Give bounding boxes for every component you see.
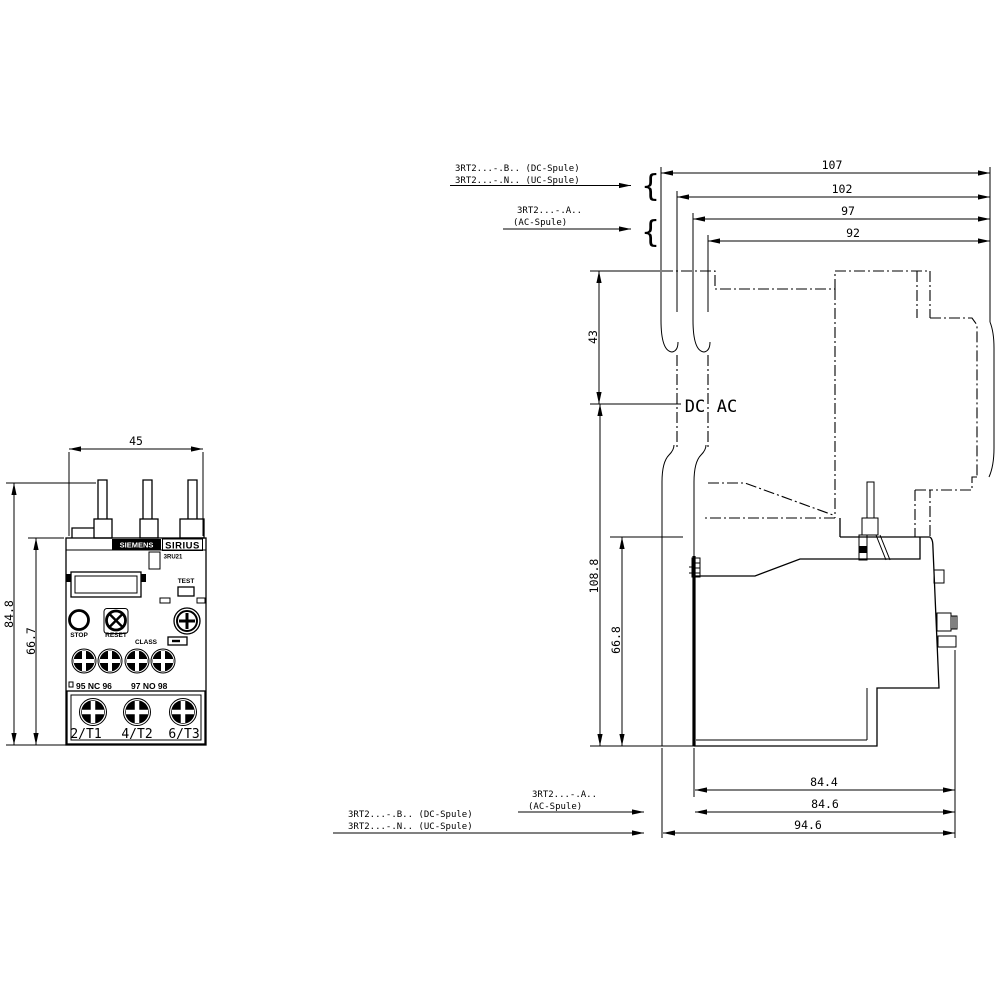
brace-top-dc: {: [641, 169, 660, 204]
plug-pin-assembly: [859, 482, 890, 560]
relay-right-features: [934, 570, 957, 647]
dimension-drawing-page: 45 84.8 66.7 SIEMENS SIRIUS 3RU21: [0, 0, 1000, 1000]
technical-drawing: 45 84.8 66.7 SIEMENS SIRIUS 3RU21: [0, 0, 1000, 1000]
aux-terminals-left-label: 95 NC 96: [76, 681, 112, 691]
stop-button[interactable]: [70, 611, 89, 630]
terminal-2T1-label: 2/T1: [70, 727, 101, 742]
current-dial[interactable]: [66, 572, 146, 597]
coil-ac-label: AC: [717, 397, 737, 417]
dim-92: 92: [846, 226, 860, 240]
main-terminal-screws[interactable]: [80, 699, 197, 726]
contactor-phantom-outline: [662, 271, 994, 537]
dim-45: 45: [129, 434, 143, 448]
indicator-window-right: [197, 598, 205, 603]
label-bottom-dc-2: 3RT2...-.N.. (UC-Spule): [348, 822, 473, 832]
terminal-6T3-label: 6/T3: [168, 727, 199, 742]
mounting-screw: [174, 608, 200, 634]
front-window: [149, 552, 160, 569]
brace-top-ac: {: [641, 215, 660, 250]
label-top-ac-1: 3RT2...-.A..: [517, 206, 582, 216]
dim-107: 107: [822, 158, 843, 172]
siemens-logo-text: SIEMENS: [120, 541, 154, 550]
relay-side-outline: [694, 537, 939, 746]
coil-dc-label: DC: [685, 397, 705, 417]
test-label: TEST: [178, 578, 195, 585]
front-view: 45 84.8 66.7 SIEMENS SIRIUS 3RU21: [2, 434, 206, 745]
aux-terminal-screws[interactable]: [72, 649, 175, 673]
dim-102: 102: [832, 182, 853, 196]
label-top-dc-1: 3RT2...-.B.. (DC-Spule): [455, 164, 580, 174]
class-jumper: [168, 637, 187, 645]
dim-84-8: 84.8: [2, 600, 16, 628]
terminal-square-icon: [69, 682, 73, 687]
labels-bottom-ac: 3RT2...-.A.. (AC-Spule): [518, 790, 644, 812]
indicator-window-left: [160, 598, 170, 603]
reset-button[interactable]: [104, 609, 128, 634]
model-label: 3RU21: [164, 555, 183, 561]
front-pins: [72, 480, 204, 538]
dim-84-6: 84.6: [811, 797, 839, 811]
class-label: CLASS: [135, 639, 158, 646]
labels-top-ac: 3RT2...-.A.. (AC-Spule): [503, 206, 631, 229]
side-view: DC AC: [333, 158, 994, 838]
labels-top-dc: 3RT2...-.B.. (DC-Spule) 3RT2...-.N.. (UC…: [450, 164, 631, 186]
reset-label: RESET: [105, 632, 127, 639]
label-bottom-ac-2: (AC-Spule): [528, 802, 582, 812]
aux-terminals-right-label: 97 NO 98: [131, 681, 168, 691]
label-top-ac-2: (AC-Spule): [513, 218, 567, 228]
dim-94-6: 94.6: [794, 818, 822, 832]
dim-84-4: 84.4: [810, 775, 838, 789]
label-bottom-ac-1: 3RT2...-.A..: [532, 790, 597, 800]
label-top-dc-2: 3RT2...-.N.. (UC-Spule): [455, 176, 580, 186]
dim-66-8: 66.8: [609, 626, 623, 654]
mounting-hooks-upper: [661, 167, 710, 352]
dim-108-8: 108.8: [587, 559, 601, 594]
dim-66-7: 66.7: [24, 627, 38, 655]
dim-97: 97: [841, 204, 855, 218]
stop-label: STOP: [70, 632, 88, 639]
terminal-4T2-label: 4/T2: [121, 727, 152, 742]
test-button[interactable]: [178, 587, 194, 596]
dim-43: 43: [586, 330, 600, 344]
label-bottom-dc-1: 3RT2...-.B.. (DC-Spule): [348, 810, 473, 820]
labels-bottom-dc: 3RT2...-.B.. (DC-Spule) 3RT2...-.N.. (UC…: [333, 810, 644, 833]
sirius-label: SIRIUS: [165, 541, 200, 552]
extension-lines-side-bottom: [662, 650, 955, 838]
mounting-clips-lower: [662, 445, 706, 746]
